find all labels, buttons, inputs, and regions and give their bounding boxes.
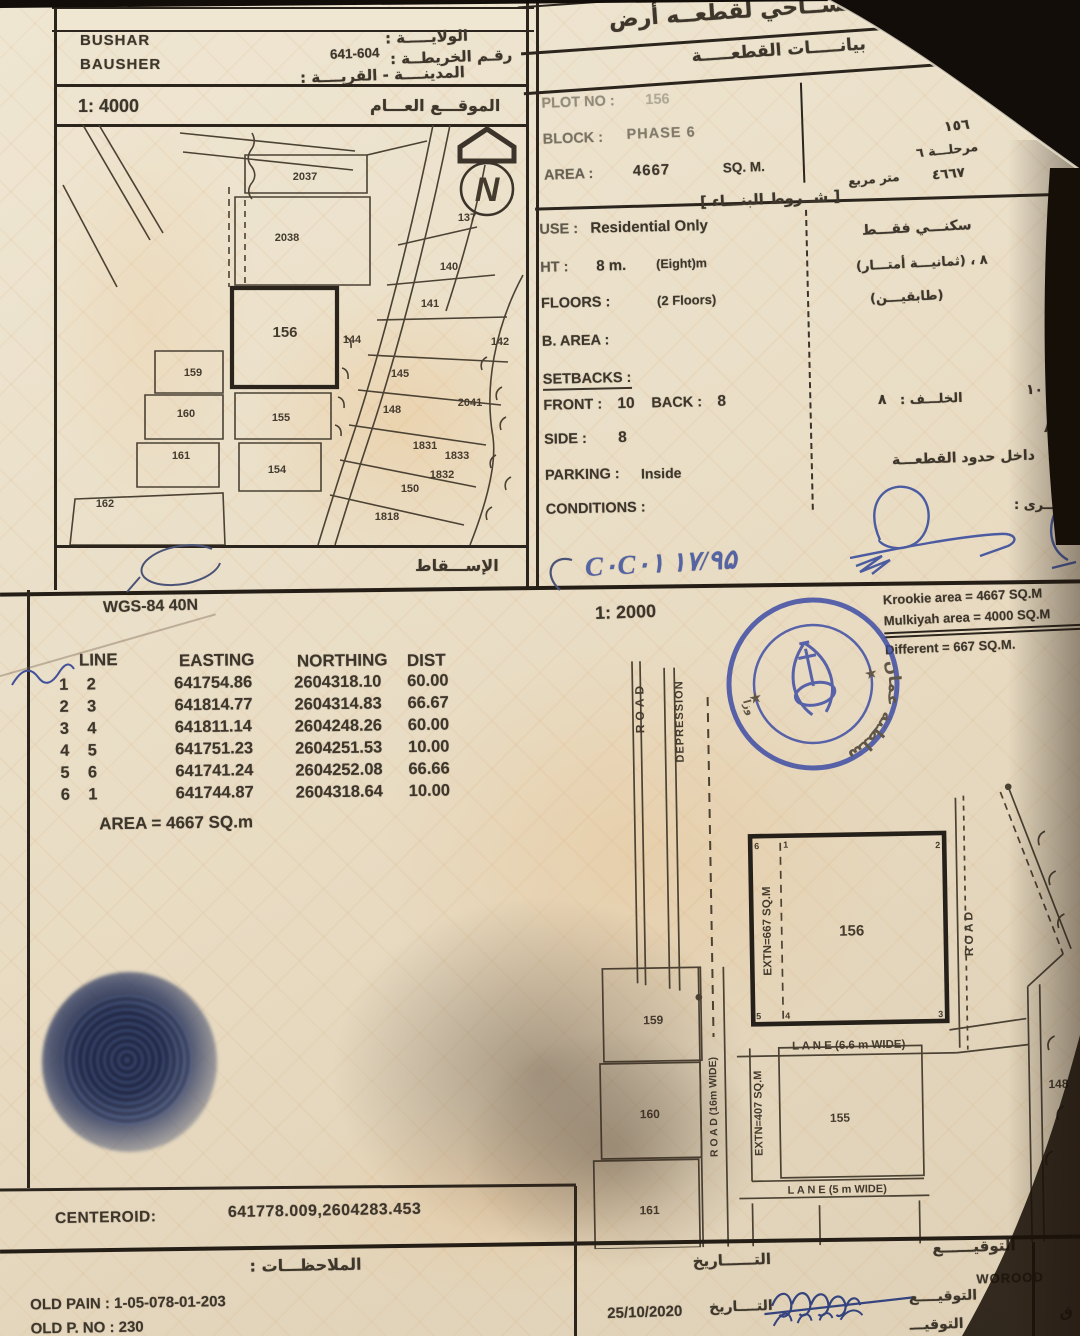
top-edge-dark: [0, 0, 838, 8]
scanned-survey-document: BUSHAR BAUSHER الولايـــــة : رقـم الخري…: [0, 0, 1080, 1336]
top-right-dark-corner: [828, 0, 1080, 170]
right-edge-dark-strip: [1045, 168, 1080, 545]
background-edges: [0, 0, 1080, 1336]
bottom-right-dark-corner: [962, 1035, 1080, 1336]
